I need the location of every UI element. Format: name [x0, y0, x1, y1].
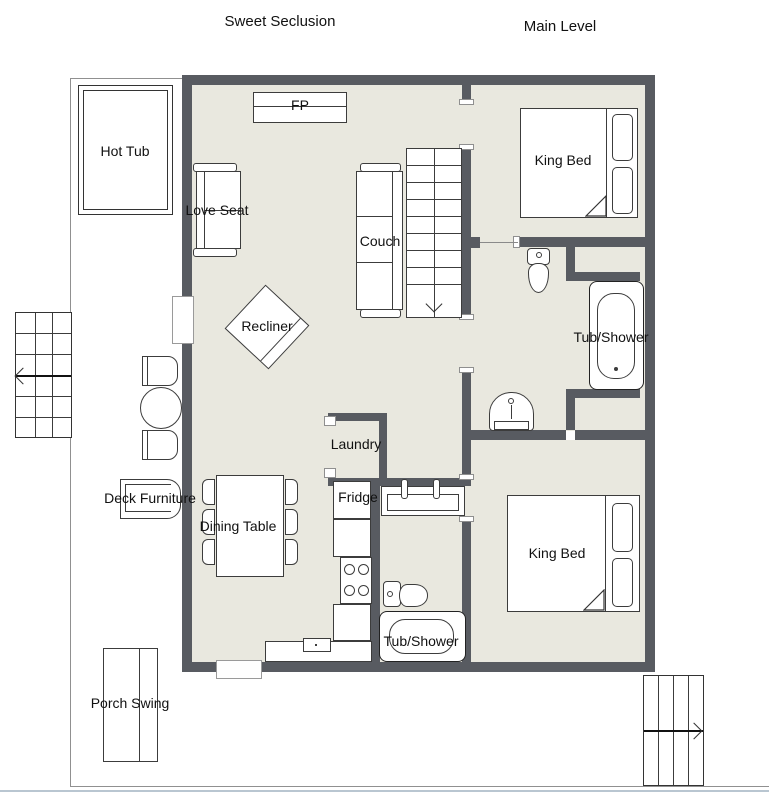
wall	[566, 389, 575, 430]
door-jamb	[459, 99, 474, 105]
sink-faucet-icon	[508, 398, 514, 404]
stair-step	[407, 250, 461, 251]
pillow	[612, 167, 633, 214]
burner-icon	[344, 564, 355, 575]
deck-chair-line	[147, 431, 148, 459]
wall	[462, 430, 566, 440]
door-jamb	[459, 367, 474, 373]
stair-step	[16, 396, 71, 397]
bed-fold-corner	[585, 195, 607, 217]
stair-step	[16, 333, 71, 334]
fireplace-label: FP	[253, 97, 347, 113]
hot-tub-label: Hot Tub	[85, 143, 165, 159]
stair-step	[407, 267, 461, 268]
deck-chair-line	[147, 357, 148, 385]
floor-plan: Sweet Seclusion Main Level FP	[0, 0, 769, 793]
laundry-label: Laundry	[316, 436, 396, 452]
stair-step	[407, 233, 461, 234]
wall	[182, 75, 655, 85]
burner-icon	[344, 585, 355, 596]
wall	[566, 272, 640, 281]
porch-swing-label: Porch Swing	[84, 695, 176, 711]
door-jamb	[324, 416, 336, 426]
couch-label: Couch	[345, 233, 415, 249]
couch-cushion-line	[356, 216, 392, 217]
bed-fold-corner	[583, 589, 605, 611]
wall	[645, 75, 655, 672]
deck-edge-top	[70, 78, 182, 79]
kitchen-counter	[333, 604, 371, 641]
burner-icon	[358, 585, 369, 596]
toilet-bowl-icon	[399, 584, 428, 607]
stair-step	[407, 182, 461, 183]
dining-chair	[285, 479, 298, 505]
couch-armrest	[360, 309, 401, 318]
door-jamb	[324, 468, 336, 478]
pillow	[612, 503, 633, 552]
sink-basin-front	[494, 421, 529, 430]
dining-chair	[285, 539, 298, 565]
wall	[575, 430, 645, 440]
recliner-label: Recliner	[222, 318, 312, 334]
bottom-accent-line	[0, 790, 769, 792]
stair-step	[407, 216, 461, 217]
pillow	[612, 114, 633, 161]
dining-table-label: Dining Table	[178, 518, 298, 534]
couch-cushion-line	[356, 262, 392, 263]
plan-title: Sweet Seclusion	[200, 13, 360, 30]
fridge-label: Fridge	[322, 489, 394, 505]
stair-step	[407, 165, 461, 166]
wall	[462, 147, 471, 318]
vanity-basin	[387, 494, 459, 511]
bathtub-drain-icon	[614, 367, 618, 371]
wall	[518, 237, 645, 247]
sink-stem-line	[511, 405, 512, 419]
deck-edge-bottom	[70, 786, 769, 787]
loveseat-armrest	[193, 248, 237, 257]
kitchen-sink-icon	[303, 638, 331, 652]
tub-shower-bottom-label: Tub/Shower	[375, 633, 467, 649]
stair-step	[407, 284, 461, 285]
toilet-button-icon	[536, 252, 542, 258]
toilet-button-icon	[387, 591, 393, 597]
stair-step	[16, 417, 71, 418]
stair-step	[407, 199, 461, 200]
kitchen-counter	[333, 519, 371, 557]
deck-furniture-label: Deck Furniture	[95, 490, 205, 506]
stove-icon	[340, 557, 372, 604]
sink-drain-dot	[315, 644, 317, 646]
porch-door	[216, 660, 262, 679]
deck-table	[140, 387, 182, 429]
stair-step	[16, 354, 71, 355]
king-bed-bottom-label: King Bed	[512, 545, 602, 561]
wall-seam	[566, 431, 575, 440]
faucet-icon	[433, 479, 440, 499]
wall	[182, 75, 192, 672]
burner-icon	[358, 564, 369, 575]
pillow	[612, 558, 633, 607]
faucet-icon	[401, 479, 408, 499]
wall	[470, 237, 480, 248]
door-threshold	[480, 242, 518, 243]
tub-shower-top-label: Tub/Shower	[565, 329, 657, 345]
bed-headboard-line	[605, 496, 606, 611]
wall	[462, 372, 471, 477]
dining-chair	[202, 539, 215, 565]
level-title: Main Level	[495, 18, 625, 35]
king-bed-top-label: King Bed	[518, 152, 608, 168]
patio-door	[172, 296, 194, 344]
wall	[566, 389, 640, 398]
loveseat-label: Love Seat	[172, 202, 262, 218]
door-jamb	[459, 474, 474, 480]
door-jamb	[459, 516, 474, 522]
